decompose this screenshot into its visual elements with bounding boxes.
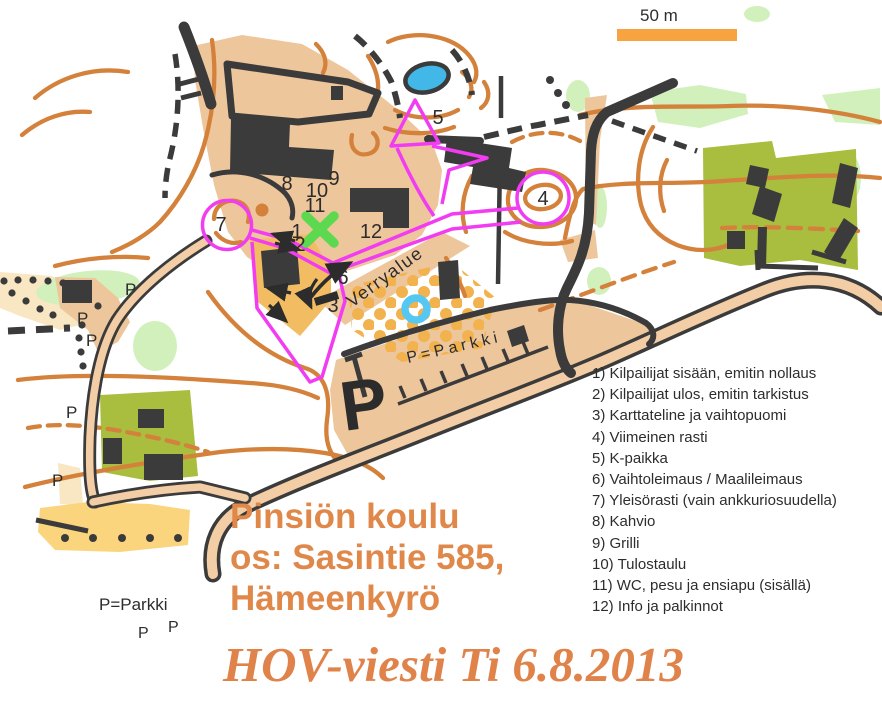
control-label-2: 2 — [294, 234, 305, 256]
scale-bar-label: 50 m — [640, 6, 678, 26]
p-marker: P — [125, 280, 136, 299]
control-label-8: 8 — [281, 173, 292, 195]
control-label-12: 12 — [360, 221, 382, 243]
legend-item: 9) Grilli — [592, 533, 837, 554]
legend-item: 12) Info ja palkinnot — [592, 596, 837, 617]
legend-item: 6) Vaihtoleimaus / Maalileimaus — [592, 469, 837, 490]
pond — [402, 59, 451, 97]
venue-line: Pinsiön koulu — [230, 496, 504, 537]
parking-p-marker: P — [138, 625, 149, 643]
legend-item: 5) K-paikka — [592, 448, 837, 469]
legend-item: 7) Yleisörasti (vain ankkuriosuudella) — [592, 490, 837, 511]
school-main-building — [227, 64, 378, 122]
legend-item: 4) Viimeinen rasti — [592, 427, 837, 448]
control-label-3: 3 — [327, 295, 338, 317]
legend-item: 2) Kilpailijat ulos, emitin tarkistus — [592, 384, 837, 405]
p-marker: P — [77, 309, 88, 328]
venue-line: os: Sasintie 585, — [230, 537, 504, 578]
venue-line: Hämeenkyrö — [230, 578, 504, 619]
event-title: HOV-viesti Ti 6.8.2013 — [223, 636, 684, 693]
legend-item: 10) Tulostaulu — [592, 554, 837, 575]
control-label-7: 7 — [215, 214, 226, 236]
parking-legend: P=Parkki — [99, 595, 168, 615]
control-label-9: 9 — [328, 168, 339, 190]
p-marker: P — [52, 471, 63, 490]
legend-item: 1) Kilpailijat sisään, emitin nollaus — [592, 363, 837, 384]
control-label-6: 6 — [337, 267, 348, 289]
legend: 1) Kilpailijat sisään, emitin nollaus 2)… — [592, 363, 837, 617]
parking-p-marker: P — [168, 619, 179, 637]
legend-item: 8) Kahvio — [592, 511, 837, 532]
northeast-building — [444, 138, 526, 192]
control-label-4: 4 — [537, 188, 548, 210]
p-marker: P — [66, 403, 77, 422]
p-marker: P — [86, 331, 97, 350]
legend-item: 11) WC, pesu ja ensiapu (sisällä) — [592, 575, 837, 596]
scale-bar — [617, 29, 737, 41]
orienteering-event-info-sheet: 1 2 3 4 5 6 7 8 9 10 11 12 Verryalue P=P… — [0, 0, 882, 707]
venue-address: Pinsiön koulu os: Sasintie 585, Hämeenky… — [230, 496, 504, 619]
legend-item: 3) Karttateline ja vaihtopuomi — [592, 405, 837, 426]
control-label-5: 5 — [432, 107, 443, 129]
control-label-11: 11 — [305, 195, 326, 217]
parking-building — [438, 260, 460, 300]
